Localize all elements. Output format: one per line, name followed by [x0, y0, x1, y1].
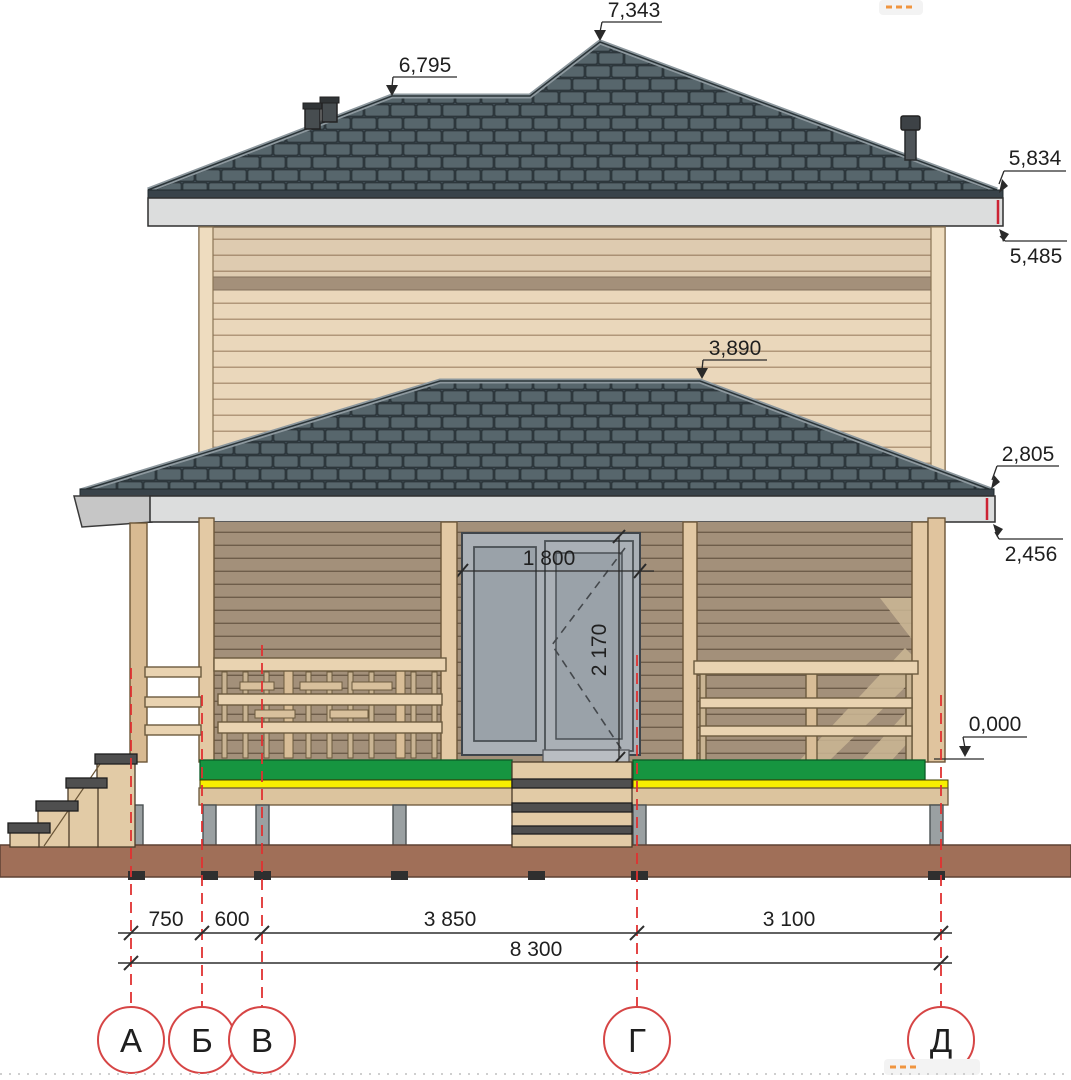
- belt-board: [199, 277, 945, 290]
- eave-shadow: [199, 227, 945, 277]
- elevation-drawing-canvas: 1 800 2 170: [0, 0, 1071, 1080]
- marker-chip-bottom: [884, 1059, 980, 1075]
- elev-porch-eave-bottom: 2,456: [1005, 543, 1058, 566]
- house-elevation-svg: 1 800 2 170: [0, 0, 1071, 1080]
- deck-yellow-right: [633, 780, 948, 788]
- axis-circles: А Б В Г Д: [98, 1007, 974, 1073]
- main-roof: [148, 42, 1003, 226]
- elev-main-eave-top: 5,834: [1009, 147, 1062, 170]
- elev-main-eave-bottom: 5,485: [1010, 245, 1063, 268]
- first-floor: 1 800 2 170: [130, 518, 945, 765]
- door-glass-left: [474, 547, 536, 741]
- porch-roof-edge-board: [80, 489, 994, 496]
- overall-dim: 8 300: [510, 938, 563, 961]
- deck-green-right: [633, 760, 925, 780]
- stair-railing: [145, 667, 201, 735]
- elev-ridge-secondary: 6,795: [399, 54, 452, 77]
- main-roof-edge-board: [148, 190, 1003, 198]
- corner-board-right: [931, 227, 945, 493]
- deck-yellow-left: [200, 780, 512, 788]
- door-height-dim: 2 170: [588, 624, 611, 677]
- deck-green-left: [200, 760, 512, 780]
- span-dim-b-v: 600: [214, 908, 249, 931]
- entrance-steps: [512, 762, 632, 847]
- axis-label-v: В: [251, 1022, 273, 1059]
- axis-label-d: Д: [930, 1022, 952, 1059]
- axis-label-g: Г: [628, 1022, 646, 1059]
- elev-porch-eave-top: 2,805: [1002, 443, 1055, 466]
- elev-floor-zero: 0,000: [969, 713, 1022, 736]
- post-door-right: [683, 522, 697, 762]
- pile: [393, 805, 406, 848]
- pile: [633, 805, 646, 848]
- ground: [0, 845, 1071, 880]
- elev-ridge-main: 7,343: [608, 0, 661, 22]
- axis-label-b: Б: [191, 1022, 213, 1059]
- axis-label-a: А: [120, 1022, 142, 1059]
- span-dim-g-d: 3 100: [763, 908, 816, 931]
- span-dim-a-b: 750: [148, 908, 183, 931]
- main-roof-fascia: [148, 198, 1003, 226]
- post-corner-right: [928, 518, 945, 762]
- elev-porch-ridge: 3,890: [709, 337, 762, 360]
- post-door-left: [441, 522, 457, 762]
- side-stairs: [8, 754, 137, 847]
- door-width-dim: 1 800: [523, 547, 576, 570]
- pile: [203, 805, 216, 848]
- porch-fascia: [150, 496, 995, 522]
- span-dim-v-g: 3 850: [424, 908, 477, 931]
- post-right: [912, 522, 928, 762]
